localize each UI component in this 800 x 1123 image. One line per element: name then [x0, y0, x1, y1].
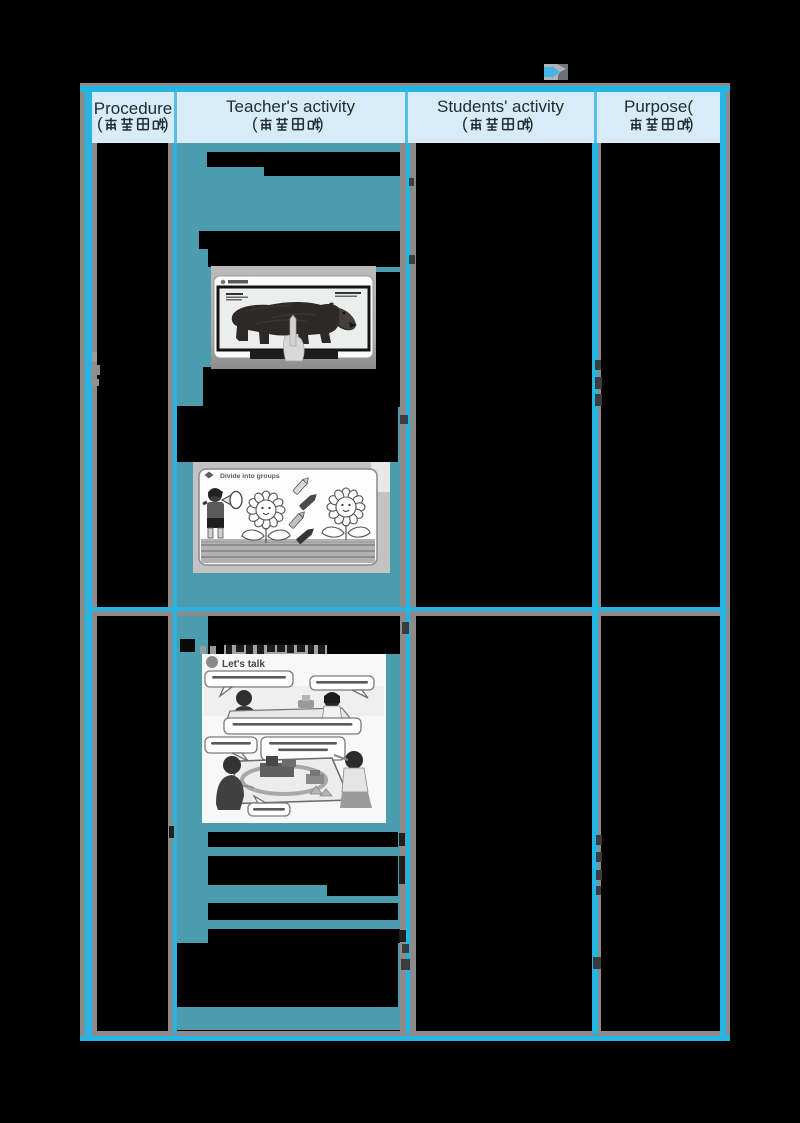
svg-text:Let's talk: Let's talk	[222, 659, 265, 670]
svg-text:Divide into groups: Divide into groups	[220, 473, 280, 480]
